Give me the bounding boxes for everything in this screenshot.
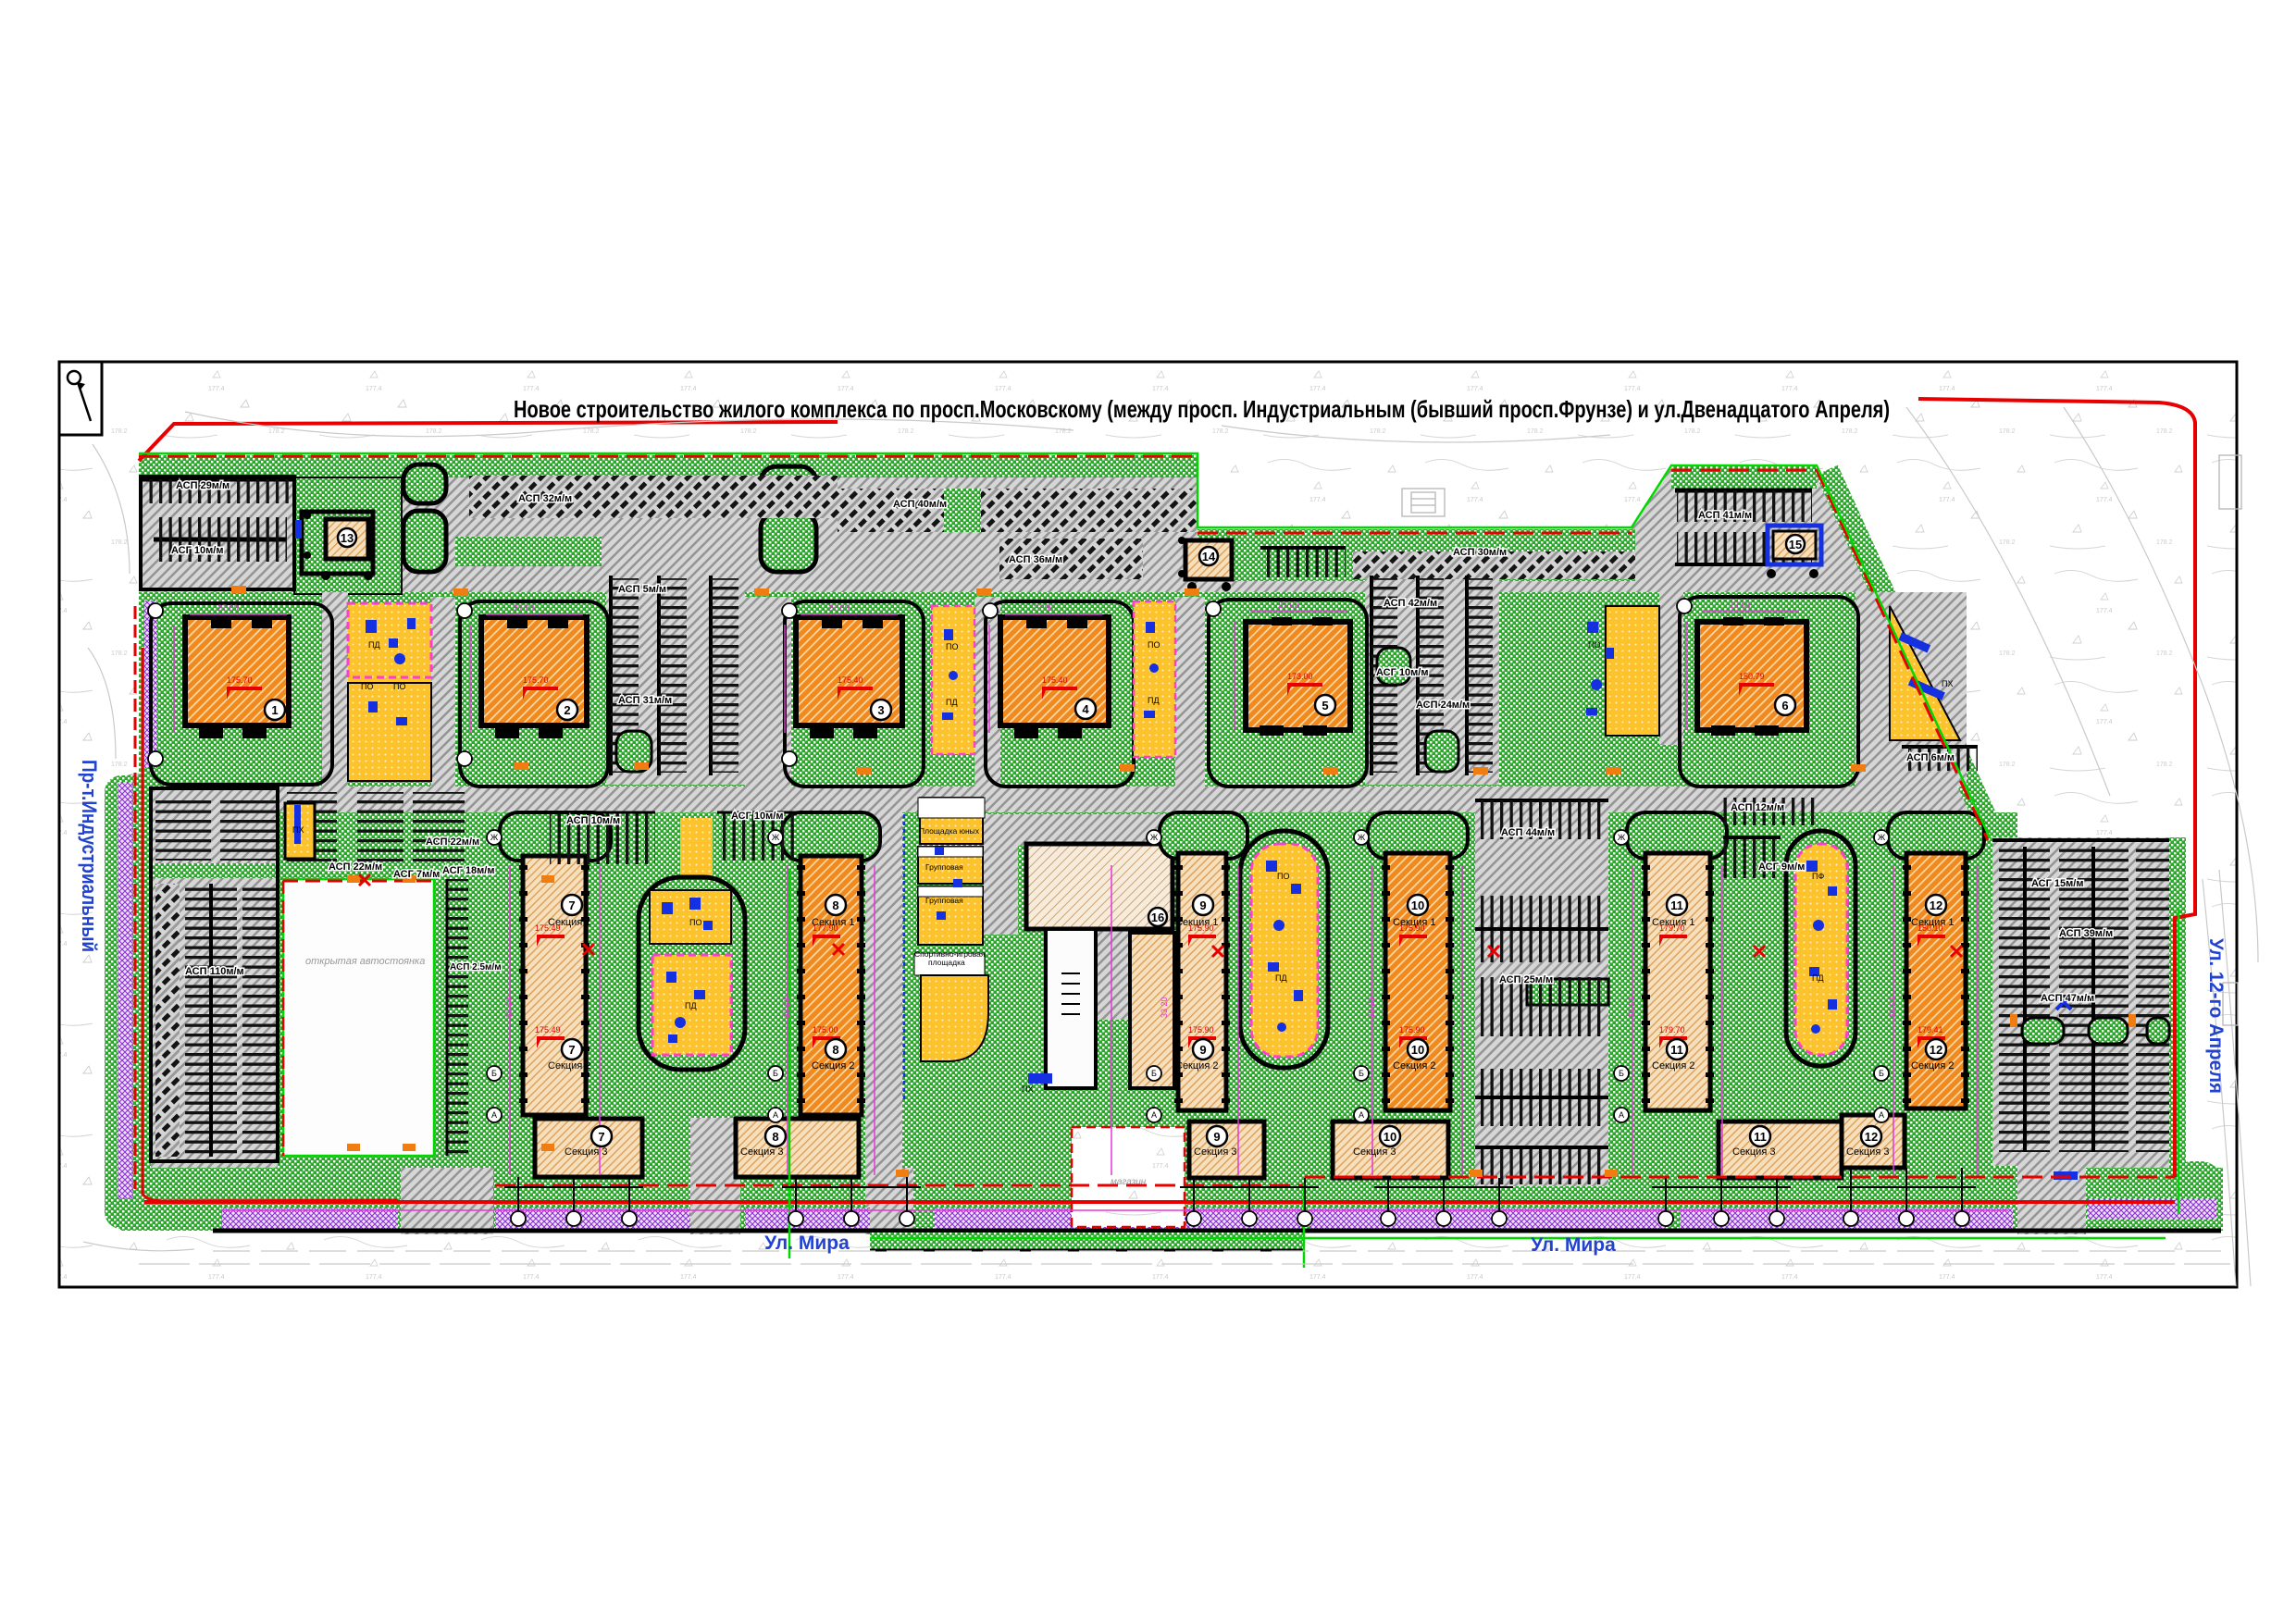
- svg-text:ПХ: ПХ: [1942, 679, 1953, 688]
- svg-text:175.40: 175.40: [838, 675, 863, 685]
- svg-text:АСГ 10м/м: АСГ 10м/м: [1376, 667, 1428, 678]
- svg-text:Секция 3: Секция 3: [1732, 1146, 1775, 1158]
- svg-text:АСП 41м/м: АСП 41м/м: [1698, 510, 1752, 521]
- svg-text:А: А: [1151, 1110, 1157, 1120]
- svg-text:АСП 22м/м: АСП 22м/м: [426, 836, 479, 848]
- svg-text:175.70: 175.70: [227, 675, 253, 685]
- svg-text:Ул. Мира: Ул. Мира: [764, 1233, 850, 1254]
- svg-text:А: А: [1619, 1110, 1624, 1120]
- svg-text:площадка: площадка: [928, 958, 965, 967]
- svg-text:А: А: [491, 1110, 497, 1120]
- svg-text:Секция 3: Секция 3: [565, 1146, 607, 1158]
- svg-text:Секция 3: Секция 3: [1846, 1146, 1889, 1158]
- svg-text:А: А: [773, 1110, 778, 1120]
- svg-text:33 20: 33 20: [1367, 997, 1376, 1018]
- svg-text:ПД: ПД: [685, 1001, 697, 1010]
- svg-text:173.00: 173.00: [1287, 672, 1313, 681]
- svg-text:АСП 10м/м: АСП 10м/м: [566, 815, 620, 826]
- svg-text:8: 8: [772, 1130, 778, 1144]
- svg-text:Ж: Ж: [1878, 833, 1886, 842]
- svg-text:ПД: ПД: [1812, 973, 1824, 983]
- svg-text:16: 16: [1151, 911, 1164, 924]
- svg-text:АСП 22м/м: АСП 22м/м: [329, 861, 382, 873]
- svg-text:АСП 36м/м: АСП 36м/м: [1009, 554, 1062, 565]
- svg-text:Секция 2: Секция 2: [1393, 1060, 1435, 1072]
- svg-text:Ул. Мира: Ул. Мира: [1531, 1234, 1616, 1256]
- svg-text:4: 4: [1082, 702, 1089, 716]
- svg-text:179.70: 179.70: [1659, 1025, 1685, 1035]
- svg-text:ПО: ПО: [946, 642, 958, 651]
- svg-text:АСП 25м/м: АСП 25м/м: [1499, 974, 1553, 985]
- svg-text:33 20: 33 20: [1888, 997, 1897, 1018]
- svg-text:АСП 30м/м: АСП 30м/м: [1453, 547, 1507, 558]
- svg-text:АСП 47м/м: АСП 47м/м: [2041, 993, 2094, 1004]
- svg-text:Ж: Ж: [1618, 833, 1626, 842]
- svg-text:27 00: 27 00: [1278, 601, 1299, 610]
- svg-text:1: 1: [271, 703, 278, 717]
- svg-text:АСГ 18м/м: АСГ 18м/м: [442, 865, 494, 876]
- svg-text:ПО: ПО: [361, 682, 373, 691]
- svg-text:11: 11: [1670, 898, 1683, 912]
- svg-text:175.90: 175.90: [1399, 1025, 1425, 1035]
- svg-text:33 20: 33 20: [782, 997, 791, 1018]
- svg-text:33 20: 33 20: [1160, 997, 1169, 1018]
- svg-text:АСП 110м/м: АСП 110м/м: [185, 966, 244, 977]
- svg-text:150.79: 150.79: [1739, 672, 1765, 681]
- svg-text:Новое строительство жилого ком: Новое строительство жилого комплекса по …: [514, 395, 1890, 423]
- svg-text:27 00: 27 00: [514, 603, 535, 613]
- svg-text:9: 9: [1199, 1043, 1206, 1057]
- svg-text:ПО: ПО: [1277, 872, 1289, 881]
- svg-text:АСП 40м/м: АСП 40м/м: [893, 499, 947, 510]
- svg-text:150.10: 150.10: [1917, 923, 1943, 933]
- svg-text:ПО: ПО: [1148, 640, 1160, 650]
- svg-text:Площадка юных: Площадка юных: [919, 826, 980, 836]
- svg-text:ПО: ПО: [689, 918, 701, 927]
- svg-text:ПО: ПО: [393, 682, 405, 691]
- svg-text:5: 5: [1322, 699, 1328, 712]
- svg-text:АСП 2.5м/м: АСП 2.5м/м: [450, 962, 502, 973]
- svg-text:АСП 32м/м: АСП 32м/м: [518, 493, 572, 504]
- svg-text:Ж: Ж: [772, 833, 780, 842]
- svg-text:175.70: 175.70: [523, 675, 549, 685]
- svg-text:12: 12: [1865, 1130, 1878, 1144]
- svg-text:Б: Б: [1879, 1069, 1884, 1078]
- svg-text:АСП 6м/м: АСП 6м/м: [1906, 752, 1955, 763]
- svg-text:АСП 24м/м: АСП 24м/м: [1416, 700, 1470, 711]
- svg-text:175.40: 175.40: [1042, 675, 1068, 685]
- svg-text:Секция 3: Секция 3: [1194, 1146, 1236, 1158]
- svg-text:Секция 3: Секция 3: [1353, 1146, 1396, 1158]
- svg-text:АСП 29м/м: АСП 29м/м: [176, 480, 230, 491]
- svg-text:27 00: 27 00: [217, 603, 239, 613]
- svg-text:179.41: 179.41: [1917, 1025, 1943, 1035]
- svg-text:Б: Б: [491, 1069, 497, 1078]
- svg-text:Секция 3: Секция 3: [740, 1146, 783, 1158]
- svg-text:Б: Б: [1619, 1069, 1624, 1078]
- svg-text:ПД: ПД: [1275, 973, 1287, 983]
- svg-text:11: 11: [1754, 1130, 1767, 1144]
- svg-text:175.90: 175.90: [1188, 923, 1214, 933]
- svg-text:АСП 39м/м: АСП 39м/м: [2059, 928, 2113, 939]
- svg-text:12: 12: [1930, 1043, 1942, 1057]
- svg-text:9: 9: [1199, 898, 1206, 912]
- svg-text:АСГ 10м/м: АСГ 10м/м: [171, 545, 223, 556]
- svg-text:175.00: 175.00: [813, 1025, 838, 1035]
- svg-text:Б: Б: [773, 1069, 778, 1078]
- svg-text:175.49: 175.49: [535, 1025, 561, 1035]
- svg-text:12: 12: [1930, 898, 1942, 912]
- svg-text:АСП 44м/м: АСП 44м/м: [1501, 827, 1555, 838]
- svg-text:15: 15: [1789, 538, 1802, 551]
- svg-text:Ул. 12-го Апреля: Ул. 12-го Апреля: [2205, 938, 2227, 1094]
- svg-text:ПФ: ПФ: [1812, 872, 1824, 881]
- svg-text:Секция 2: Секция 2: [1175, 1060, 1218, 1072]
- svg-text:АСГ 7м/м: АСГ 7м/м: [393, 869, 440, 880]
- svg-text:А: А: [1359, 1110, 1364, 1120]
- svg-text:Пр-т.Индустриальный: Пр-т.Индустриальный: [78, 760, 101, 952]
- svg-text:ПХ: ПХ: [1022, 1084, 1033, 1094]
- svg-text:11: 11: [1670, 1043, 1683, 1057]
- svg-text:АСП 5м/м: АСП 5м/м: [618, 584, 666, 595]
- svg-text:2: 2: [564, 703, 570, 717]
- svg-text:открытая автостоянка: открытая автостоянка: [305, 956, 425, 967]
- svg-text:177.90: 177.90: [813, 923, 838, 933]
- svg-text:Групповая: Групповая: [925, 862, 963, 872]
- svg-text:Секция 2: Секция 2: [1911, 1060, 1954, 1072]
- svg-text:АСГ 9м/м: АСГ 9м/м: [1758, 861, 1805, 873]
- svg-text:АСП 31м/м: АСП 31м/м: [618, 695, 672, 706]
- svg-text:Б: Б: [1151, 1069, 1157, 1078]
- svg-text:175.49: 175.49: [535, 923, 561, 933]
- svg-text:Б: Б: [1359, 1069, 1364, 1078]
- svg-text:175.90: 175.90: [1399, 923, 1425, 933]
- svg-text:27 00: 27 00: [1730, 601, 1751, 610]
- svg-text:175.90: 175.90: [1188, 1025, 1214, 1035]
- svg-text:6: 6: [1781, 699, 1788, 712]
- svg-text:Ж: Ж: [1150, 833, 1159, 842]
- svg-text:8: 8: [832, 898, 838, 912]
- svg-text:27 00: 27 00: [1033, 603, 1054, 613]
- svg-text:7: 7: [568, 898, 575, 912]
- svg-text:7: 7: [568, 1043, 575, 1057]
- svg-text:Групповая: Групповая: [925, 896, 963, 905]
- svg-text:33 20: 33 20: [504, 997, 514, 1018]
- svg-text:ПО: ПО: [1588, 640, 1600, 650]
- svg-text:АСГ 15м/м: АСГ 15м/м: [2031, 878, 2083, 889]
- svg-text:Секция 2: Секция 2: [812, 1060, 854, 1072]
- svg-text:14: 14: [1202, 550, 1216, 564]
- svg-text:ПХ: ПХ: [292, 825, 304, 835]
- svg-text:АСП 42м/м: АСП 42м/м: [1384, 598, 1437, 609]
- svg-text:ПД: ПД: [368, 640, 380, 650]
- svg-text:3: 3: [877, 703, 884, 717]
- svg-text:13: 13: [341, 531, 354, 545]
- svg-text:ПД: ПД: [946, 698, 958, 707]
- svg-text:33 20: 33 20: [1627, 997, 1636, 1018]
- svg-text:АСГ 10м/м: АСГ 10м/м: [731, 811, 783, 822]
- svg-text:А: А: [1879, 1110, 1884, 1120]
- svg-text:Ж: Ж: [490, 833, 499, 842]
- svg-text:ПД: ПД: [1148, 696, 1160, 705]
- svg-text:Секция 2: Секция 2: [1652, 1060, 1694, 1072]
- svg-text:10: 10: [1411, 1043, 1424, 1057]
- svg-text:Секция 2: Секция 2: [548, 1060, 590, 1072]
- svg-text:179.70: 179.70: [1659, 923, 1685, 933]
- svg-text:10: 10: [1411, 898, 1424, 912]
- svg-text:АСП 12м/м: АСП 12м/м: [1731, 802, 1784, 813]
- svg-text:9: 9: [1213, 1130, 1220, 1144]
- svg-text:10: 10: [1384, 1130, 1396, 1144]
- svg-text:8: 8: [832, 1043, 838, 1057]
- svg-text:Ж: Ж: [1358, 833, 1366, 842]
- svg-text:27 00: 27 00: [828, 603, 850, 613]
- svg-text:7: 7: [598, 1130, 604, 1144]
